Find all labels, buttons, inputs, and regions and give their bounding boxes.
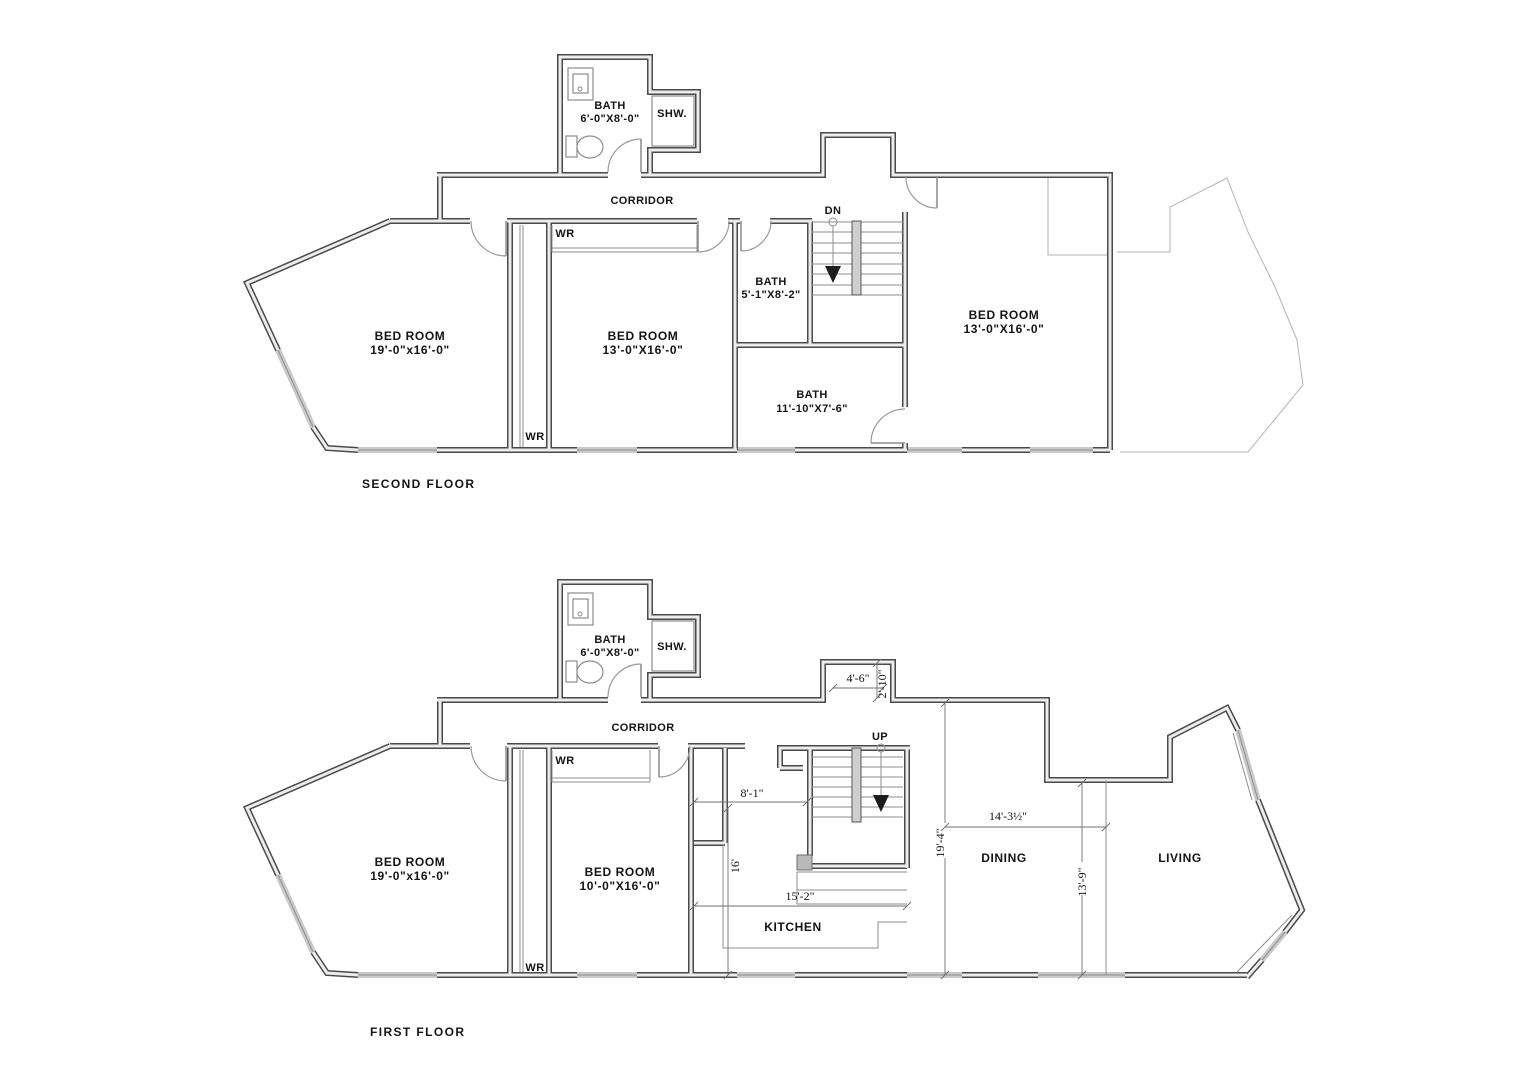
bedroom-left-label-second: BED ROOM xyxy=(375,329,446,343)
bath-small-label-second: BATH xyxy=(755,276,786,288)
shower-label-second: SHW. xyxy=(657,108,687,120)
stairs-up-label: UP xyxy=(872,731,888,743)
stair-newel-block xyxy=(797,855,812,870)
dim-living-depth: 13'-9" xyxy=(1075,867,1089,896)
floor-plan-page: BATH 6'-0"X8'-0" SHW. CORRIDOR WR WR BED… xyxy=(0,0,1528,1080)
second-floor-title: SECOND FLOOR xyxy=(362,477,475,491)
dim-nook-width: 8'-1" xyxy=(740,786,763,800)
bedroom-left-dims-second: 19'-0"x16'-0" xyxy=(370,343,450,357)
first-floor-stair-stringer xyxy=(852,748,861,822)
toilet-tank-second xyxy=(566,136,577,157)
dim-kitchen-depth: 16' xyxy=(728,859,742,873)
bath-top-dims-first: 6'-0"X8'-0" xyxy=(580,647,639,659)
bath-large-label-second: BATH xyxy=(796,389,827,401)
dim-entry-depth: 2'-10" xyxy=(875,669,889,698)
second-floor-plan: BATH 6'-0"X8'-0" SHW. CORRIDOR WR WR BED… xyxy=(247,57,1303,491)
first-floor-title: FIRST FLOOR xyxy=(370,1025,465,1039)
wr-bottom-label-second: WR xyxy=(525,431,544,443)
dim-dining-depth: 19'-4" xyxy=(933,828,947,857)
bedroom-middle-label-second: BED ROOM xyxy=(608,329,679,343)
dim-entry-width: 4'-6" xyxy=(846,671,869,685)
bedroom-middle-label-first: BED ROOM xyxy=(585,865,656,879)
living-label: LIVING xyxy=(1158,851,1202,865)
dining-label: DINING xyxy=(981,851,1027,865)
bedroom-right-label-second: BED ROOM xyxy=(969,308,1040,322)
first-floor-walls-fill xyxy=(247,582,1302,977)
bedroom-left-label-first: BED ROOM xyxy=(375,855,446,869)
first-floor-plan: 4'-6" 2'-10" 8'-1" 16' 15'-2" 19'-4" 14'… xyxy=(247,582,1302,1039)
wr-top-label-first: WR xyxy=(555,755,574,767)
first-floor-closet-lines xyxy=(520,750,650,972)
toilet-bowl-first xyxy=(577,661,603,683)
stairs-dn-label: DN xyxy=(825,205,842,217)
bath-top-dims-second: 6'-0"X8'-0" xyxy=(580,113,639,125)
wr-top-label-second: WR xyxy=(555,228,574,240)
bedroom-middle-dims-second: 13'-0"X16'-0" xyxy=(603,343,684,357)
toilet-bowl-second xyxy=(577,136,603,158)
bath-small-dims-second: 5'-1"X8'-2" xyxy=(741,289,800,301)
dim-dining-width: 14'-3½" xyxy=(989,809,1027,823)
bath-large-dims-second: 11'-10"X7'-6" xyxy=(776,403,848,415)
shower-tray-second xyxy=(652,96,694,146)
bath-top-label-first: BATH xyxy=(594,634,625,646)
floor-plan-canvas: BATH 6'-0"X8'-0" SHW. CORRIDOR WR WR BED… xyxy=(0,0,1528,1080)
toilet-tank-first xyxy=(566,661,577,682)
second-floor-reference-outline xyxy=(1048,178,1303,452)
second-floor-door-leaves xyxy=(506,139,937,443)
corridor-label-first: CORRIDOR xyxy=(611,722,674,734)
shower-label-first: SHW. xyxy=(657,641,687,653)
bedroom-middle-dims-first: 10'-0"X16'-0" xyxy=(580,879,661,893)
second-floor-windows xyxy=(278,350,1093,450)
sink-basin-second xyxy=(573,74,588,93)
wr-bottom-label-first: WR xyxy=(525,962,544,974)
bedroom-right-dims-second: 13'-0"X16'-0" xyxy=(964,322,1045,336)
bath-top-label-second: BATH xyxy=(594,100,625,112)
up-flight-arrow-icon xyxy=(873,795,889,812)
second-floor-window-glazing xyxy=(278,350,1093,450)
sink-basin-first xyxy=(573,599,588,618)
second-floor-stair-stringer xyxy=(852,221,861,295)
kitchen-label: KITCHEN xyxy=(764,920,822,934)
bedroom-left-dims-first: 19'-0"x16'-0" xyxy=(370,869,450,883)
second-floor-door-arcs xyxy=(471,139,937,443)
dim-kitchen-width: 15'-2" xyxy=(785,889,814,903)
corridor-label-second: CORRIDOR xyxy=(610,195,673,207)
